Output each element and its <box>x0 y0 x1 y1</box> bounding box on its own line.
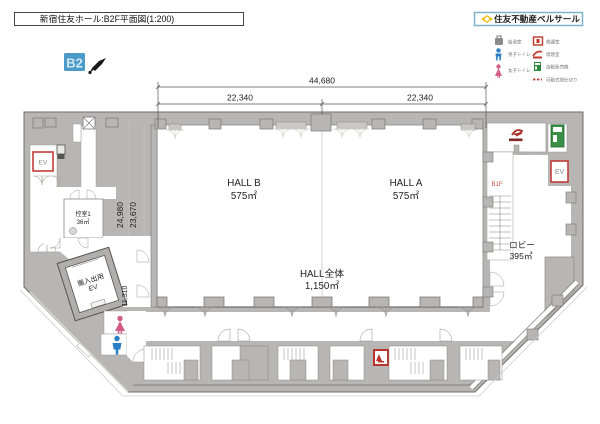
svg-text:B1F: B1F <box>491 182 502 188</box>
svg-text:自動販売機: 自動販売機 <box>546 64 569 71</box>
svg-text:23,670: 23,670 <box>128 202 138 228</box>
svg-text:575㎡: 575㎡ <box>393 190 419 202</box>
svg-text:HALL B: HALL B <box>227 178 261 189</box>
svg-text:36㎡: 36㎡ <box>77 218 90 226</box>
svg-text:HALL全体: HALL全体 <box>300 267 344 280</box>
svg-text:HALL A: HALL A <box>390 178 423 189</box>
svg-text:新宿住友ホール:B2F平面図(1:200): 新宿住友ホール:B2F平面図(1:200) <box>40 13 174 24</box>
svg-text:395㎡: 395㎡ <box>510 251 533 261</box>
svg-text:11,310: 11,310 <box>122 285 129 306</box>
svg-text:ロビー: ロビー <box>509 240 535 250</box>
svg-text:住友不動産ベルサール: 住友不動産ベルサール <box>494 13 580 24</box>
svg-text:給湯室: 給湯室 <box>508 39 522 46</box>
svg-text:24,980: 24,980 <box>115 202 125 228</box>
svg-text:B2: B2 <box>66 56 83 71</box>
svg-text:可動式間仕切り: 可動式間仕切り <box>546 77 578 84</box>
svg-text:575㎡: 575㎡ <box>231 190 257 202</box>
svg-text:救護室: 救護室 <box>546 39 560 46</box>
svg-text:22,340: 22,340 <box>227 93 253 103</box>
svg-text:22,340: 22,340 <box>407 93 433 103</box>
svg-text:EV: EV <box>555 169 565 176</box>
svg-text:1,150㎡: 1,150㎡ <box>305 280 340 292</box>
svg-text:喫煙室: 喫煙室 <box>546 51 560 58</box>
svg-text:44,680: 44,680 <box>309 76 335 86</box>
svg-text:男子トイレ: 男子トイレ <box>508 51 531 58</box>
svg-text:控室1: 控室1 <box>75 210 91 218</box>
svg-text:EV: EV <box>39 160 48 167</box>
svg-text:女子トイレ: 女子トイレ <box>508 67 531 74</box>
